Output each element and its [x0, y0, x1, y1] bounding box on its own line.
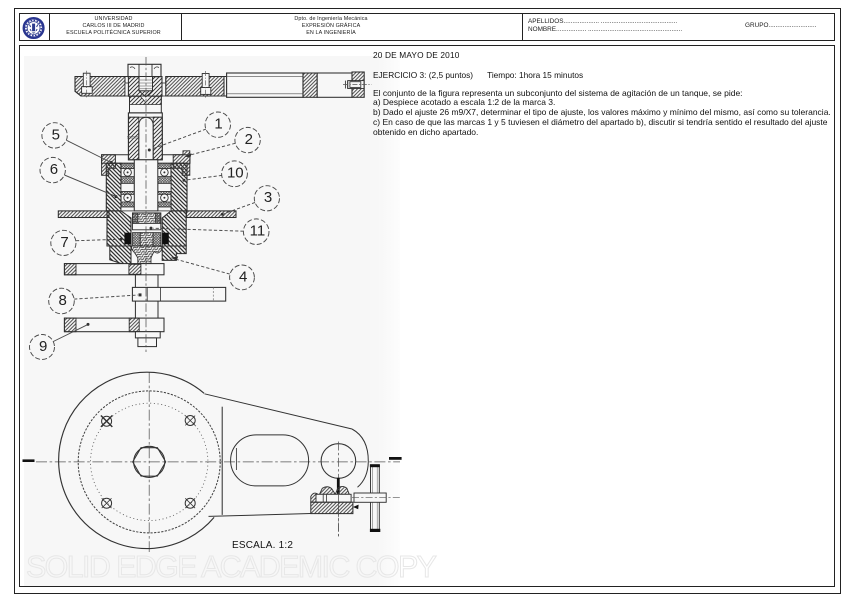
- svg-text:9: 9: [39, 338, 47, 355]
- svg-text:4: 4: [239, 268, 247, 285]
- svg-text:7: 7: [60, 234, 68, 251]
- svg-text:10: 10: [227, 165, 244, 182]
- svg-text:11: 11: [250, 223, 266, 240]
- svg-text:6: 6: [50, 161, 58, 178]
- svg-text:2: 2: [245, 131, 253, 148]
- svg-text:1: 1: [214, 116, 222, 133]
- svg-text:5: 5: [52, 126, 60, 143]
- svg-text:3: 3: [264, 189, 272, 206]
- svg-text:8: 8: [59, 292, 67, 309]
